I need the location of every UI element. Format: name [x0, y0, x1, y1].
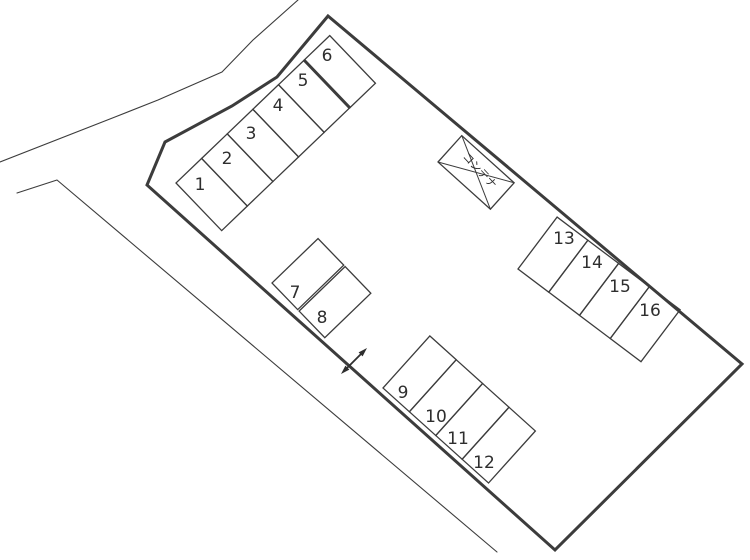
parking-space-label-6: 6 [322, 46, 333, 66]
parking-space-label-13: 13 [553, 229, 575, 249]
parking-space-label-15: 15 [609, 277, 631, 297]
parking-space-label-12: 12 [473, 453, 495, 473]
parking-space-label-2: 2 [222, 149, 233, 169]
parking-space-label-7: 7 [290, 283, 301, 303]
parking-space-label-1: 1 [195, 175, 206, 195]
parking-space-label-11: 11 [447, 429, 469, 449]
parking-space-label-4: 4 [273, 96, 284, 116]
parking-layout-diagram: コンテナ 1 2 3 4 5 6 7 8 9 10 11 12 13 14 15… [0, 0, 750, 560]
parking-space-label-3: 3 [246, 124, 257, 144]
parking-space-label-14: 14 [581, 253, 603, 273]
parking-space-label-10: 10 [425, 407, 447, 427]
parking-diagram-canvas: コンテナ 1 2 3 4 5 6 7 8 9 10 11 12 13 14 15… [0, 0, 750, 560]
parking-space-label-8: 8 [317, 308, 328, 328]
parking-space-label-9: 9 [398, 383, 409, 403]
parking-space-label-16: 16 [639, 301, 661, 321]
parking-space-label-5: 5 [298, 71, 309, 91]
